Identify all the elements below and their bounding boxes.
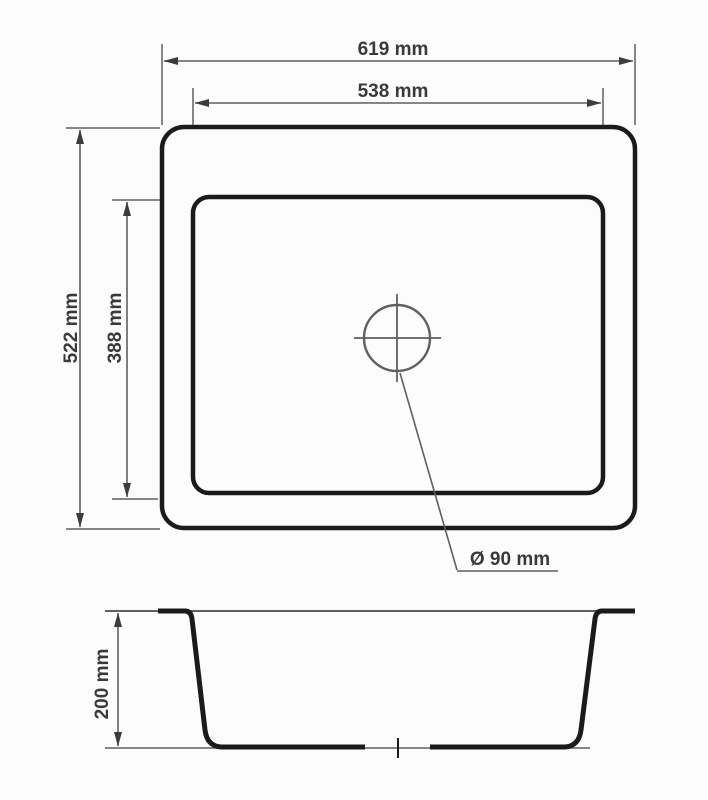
- dimension-label-outer-depth: 522 mm: [61, 293, 82, 364]
- dimension-inner-depth: 388 mm: [105, 200, 160, 499]
- drawing-canvas: 619 mm 538 mm 522 mm 388 mm: [0, 0, 708, 800]
- top-view: 619 mm 538 mm 522 mm 388 mm: [61, 39, 635, 571]
- drain-hole: [354, 294, 441, 382]
- dimension-label-inner-width: 538 mm: [358, 81, 429, 102]
- section-view: 200 mm: [92, 611, 635, 758]
- dimension-label-drain-diameter: Ø 90 mm: [470, 549, 550, 570]
- sink-outer-rim: [162, 127, 635, 528]
- dimension-bowl-depth: 200 mm: [92, 613, 118, 746]
- dimension-label-outer-width: 619 mm: [358, 39, 429, 60]
- sink-technical-drawing: 619 mm 538 mm 522 mm 388 mm: [0, 0, 708, 800]
- bowl-profile: [158, 611, 635, 747]
- leader-line: [400, 373, 457, 570]
- sink-bowl-edge: [193, 197, 603, 493]
- dimension-label-inner-depth: 388 mm: [105, 293, 126, 364]
- dimension-label-bowl-depth: 200 mm: [92, 649, 113, 720]
- dimension-inner-width: 538 mm: [193, 81, 603, 125]
- drain-callout: Ø 90 mm: [400, 373, 558, 571]
